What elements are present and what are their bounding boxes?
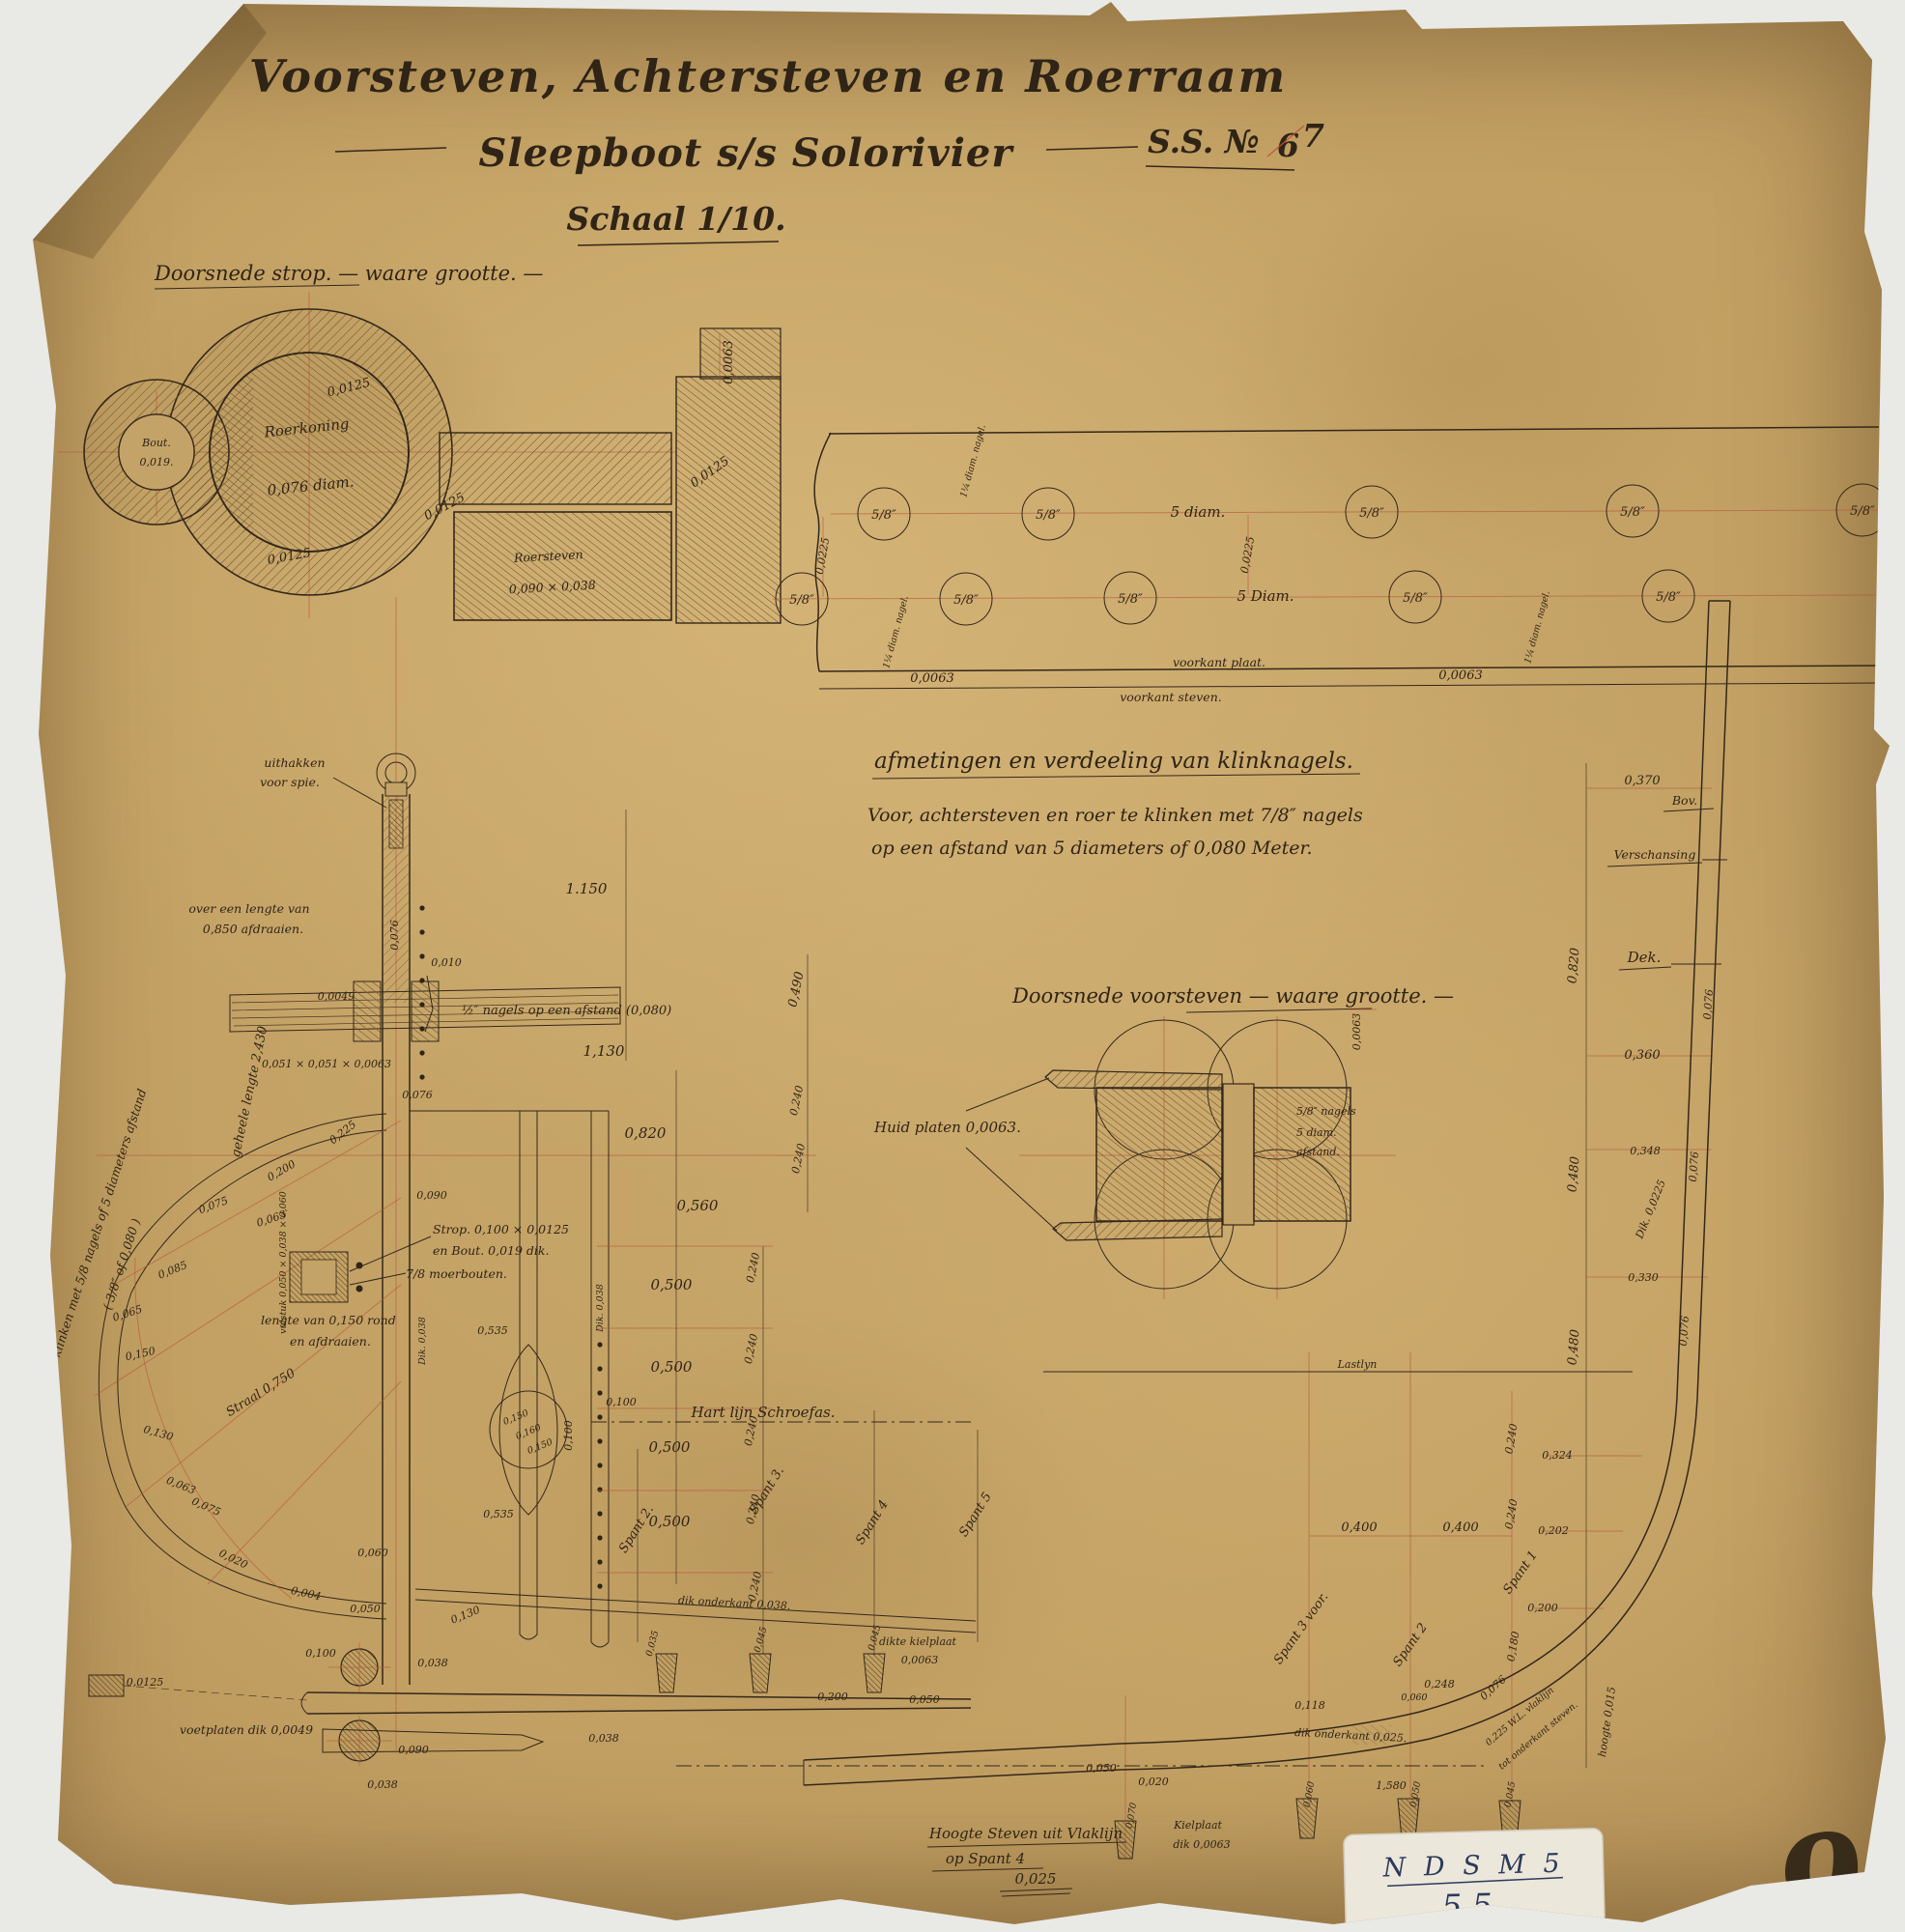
dim-label: 0,076 bbox=[1701, 989, 1716, 1020]
spant-label: Spant 3 voor. bbox=[1271, 1590, 1331, 1667]
dim-label: Dik. 0,038 bbox=[595, 1284, 606, 1333]
dim-label: 0,076 bbox=[1687, 1151, 1701, 1182]
dim-label: 0,480 bbox=[1565, 1156, 1582, 1193]
dim-label: 0,240 bbox=[1502, 1498, 1520, 1530]
dim-label: 0,118 bbox=[1294, 1699, 1325, 1712]
archive-sticker: N D S M 5 5.5 bbox=[1344, 1829, 1606, 1932]
dim-label: 0,240 bbox=[744, 1252, 762, 1285]
rivet-size-label: 5/8″ bbox=[953, 593, 979, 608]
dim-label: 0,240 bbox=[789, 1143, 808, 1176]
moerbouten-note: 7/8 moerbouten. bbox=[406, 1266, 507, 1281]
huid-plate-top bbox=[1045, 1070, 1222, 1090]
kielplaat-note: dikte kielplaat bbox=[879, 1635, 957, 1648]
rivet-size-label: 5/8″ bbox=[1403, 591, 1428, 606]
rivet-spacing-note: 5 diam. bbox=[1171, 503, 1226, 521]
dim-label: 0,0063 bbox=[1438, 668, 1483, 683]
dim-label: 0,240 bbox=[742, 1333, 760, 1366]
dim-label: 0,202 bbox=[1538, 1524, 1569, 1537]
roersteven-bar bbox=[454, 512, 671, 620]
dim-label: 0,075 bbox=[197, 1194, 230, 1216]
note-label: voor spie. bbox=[260, 775, 320, 789]
scale-label: Schaal 1/10. bbox=[566, 200, 785, 238]
series-number: S.S. № bbox=[1148, 123, 1260, 160]
voorkant-plaat-label: voorkant plaat. bbox=[1173, 655, 1265, 669]
strop-note: Strop. 0,100 × 0,0125 bbox=[433, 1222, 569, 1236]
dim-label: 0,0225 bbox=[813, 536, 832, 575]
dim-label: 0,0049 bbox=[318, 990, 355, 1003]
dim-label: 0,330 bbox=[1628, 1271, 1659, 1284]
huid-platen-label: Huid platen 0,0063. bbox=[873, 1119, 1021, 1136]
note-line: op Spant 4 bbox=[946, 1850, 1025, 1867]
dim-label: 0,500 bbox=[649, 1513, 691, 1530]
dim-label: 0,200 bbox=[1527, 1602, 1558, 1614]
dim-label: 0,130 bbox=[142, 1423, 175, 1443]
sticker-code: N D S M 5 bbox=[1381, 1849, 1565, 1884]
dim-label: 0,100 bbox=[606, 1396, 637, 1408]
bout-label: Bout. bbox=[141, 437, 171, 449]
dim-label: 0,050 bbox=[1086, 1762, 1117, 1775]
voetplaten-note: voetplaten dik 0,0049 bbox=[180, 1722, 313, 1737]
dim-label: 0,038 bbox=[417, 1657, 448, 1669]
note-line: Hoogte Steven uit Vlaklijn bbox=[928, 1825, 1123, 1842]
dim-label: dik onderkant 0,038. bbox=[678, 1594, 791, 1612]
verschansing-label: Verschansing bbox=[1614, 847, 1696, 862]
waterline-note: tot onderkant steven. bbox=[1496, 1700, 1579, 1773]
dim-label: 0,324 bbox=[1542, 1449, 1573, 1462]
rivet-spacing-note: 5 Diam. bbox=[1237, 587, 1294, 605]
dim-label: 0,100 bbox=[305, 1647, 336, 1660]
dim-label: 0,240 bbox=[787, 1085, 806, 1118]
vsned-heading: Doorsnede voorsteven — waare grootte. — bbox=[1011, 984, 1454, 1008]
dim-label: 0,076 bbox=[1478, 1673, 1509, 1703]
plate-section: 5/8″ 5/8″ 5/8″ 5/8″ 5/8″ 5 diam. 5/8″ 5/… bbox=[773, 423, 1889, 704]
lastlijn-label: Lastlyn bbox=[1337, 1358, 1378, 1371]
dim-label: 0,076 bbox=[388, 920, 401, 951]
note-label: 0,850 afdraaien. bbox=[203, 922, 303, 936]
huid-plate-bottom bbox=[1053, 1219, 1222, 1240]
note-label: uithakken bbox=[264, 755, 325, 770]
note-label: over een lengte van bbox=[188, 901, 309, 916]
dim-label: 0,0063 bbox=[1351, 1013, 1363, 1051]
note-line2: op een afstand van 5 diameters of 0,080 … bbox=[871, 838, 1313, 859]
rivet-size-label: 5/8″ bbox=[1620, 505, 1645, 520]
drawing-sheet: Voorsteven, Achtersteven en Roerraam Sle… bbox=[0, 0, 1905, 1932]
dim-label: 0,100 bbox=[562, 1420, 575, 1451]
dim-label: 1,130 bbox=[583, 1042, 625, 1060]
hartlijn-label: Hart lijn Schroefas. bbox=[690, 1404, 835, 1421]
sheet-number-stamp: 9 bbox=[1768, 1803, 1877, 1932]
title-block: Voorsteven, Achtersteven en Roerraam Sle… bbox=[249, 50, 1324, 245]
rivet-size-label: 5/8″ bbox=[789, 593, 814, 608]
rivet-note-block: afmetingen en verdeeling van klinknagels… bbox=[867, 749, 1363, 859]
stem-bar-section-left bbox=[1096, 1088, 1222, 1221]
rivet-note-diag: ( 3/8″ of 0,080 ) bbox=[100, 1216, 143, 1311]
rivet-size-label: 5/8″ bbox=[871, 508, 896, 523]
dim-label: 0,090 bbox=[398, 1744, 429, 1756]
note-line: 0,025 bbox=[1015, 1870, 1057, 1888]
spant-label: Spant 4 bbox=[853, 1498, 892, 1548]
bout-note: en Bout. 0,019 dik. bbox=[433, 1243, 549, 1258]
steven-end-top bbox=[700, 328, 781, 379]
dim-label: 0,150 bbox=[501, 1407, 529, 1427]
dim-label: 0,010 bbox=[431, 956, 462, 969]
dim-label: 0,090 bbox=[416, 1189, 447, 1202]
rivet-size-label: 5/8″ bbox=[1656, 590, 1681, 605]
dim-label: 0,063 bbox=[164, 1474, 197, 1497]
dim-label: 0,038 bbox=[588, 1732, 619, 1745]
drawing-subtitle: Sleepboot s/s Solorivier bbox=[479, 130, 1015, 176]
bout-hole bbox=[119, 414, 194, 490]
nail-note: 1¼ diam. nagel. bbox=[1522, 589, 1552, 665]
scan-background: Voorsteven, Achtersteven en Roerraam Sle… bbox=[0, 0, 1905, 1932]
nagels-note: 5/8″ nagels bbox=[1296, 1105, 1356, 1118]
dim-label: 0,130 bbox=[449, 1604, 482, 1627]
dim-label: 0,004 bbox=[290, 1584, 323, 1603]
achtersteven-drawing: 0,150 0,160 0,150 bbox=[36, 597, 995, 1791]
note-heading: afmetingen en verdeeling van klinknagels… bbox=[874, 749, 1353, 774]
dim-label: 0,480 bbox=[1565, 1329, 1582, 1366]
dim-label: 0,060 bbox=[1401, 1692, 1427, 1703]
rivet-size-label: 5/8″ bbox=[1118, 592, 1143, 607]
dim-label: 0,076 bbox=[402, 1089, 433, 1101]
dim-label: 0,020 bbox=[1138, 1776, 1169, 1788]
nail-note: 1¼ diam. nagel. bbox=[881, 594, 911, 669]
spant-label: Spant 5 bbox=[956, 1491, 995, 1540]
dim-label: 0,500 bbox=[651, 1358, 693, 1376]
bout-dim: 0,019. bbox=[140, 456, 174, 469]
dim-label: 0,050 bbox=[350, 1603, 381, 1615]
dim-label: 0,820 bbox=[625, 1124, 667, 1142]
dim-label: 0,0125 bbox=[127, 1676, 164, 1689]
dim-label: 0,150 bbox=[526, 1436, 554, 1456]
dim-label: 0,075 bbox=[189, 1494, 222, 1519]
dim-label: 0,490 bbox=[785, 971, 807, 1009]
blueprint-linework: Voorsteven, Achtersteven en Roerraam Sle… bbox=[0, 0, 1905, 1932]
dim-label: 0,560 bbox=[677, 1197, 719, 1214]
rivet-size-label: 5/8″ bbox=[1359, 506, 1384, 521]
dim-label: 0,535 bbox=[483, 1508, 514, 1520]
dim-label: 0,0225 bbox=[1238, 535, 1257, 574]
note-label: lengte van 0,150 rond bbox=[261, 1313, 396, 1327]
dim-label: 0,820 bbox=[1565, 948, 1582, 984]
key-slot bbox=[389, 800, 403, 848]
nagels-note: 5 diam. bbox=[1296, 1126, 1337, 1139]
strop-arm bbox=[440, 433, 671, 504]
length-note: geheele lengte 2,430 bbox=[229, 1025, 270, 1159]
strop-heading: Doorsnede strop. — waare grootte. — bbox=[154, 262, 543, 285]
roerkoning-section bbox=[210, 353, 409, 552]
dim-label: 0,085 bbox=[156, 1259, 189, 1282]
dim-label: 0,370 bbox=[1624, 774, 1660, 788]
dim-label: 0,051 × 0,051 × 0,0063 bbox=[262, 1058, 391, 1070]
dim-label: 0,065 bbox=[111, 1303, 144, 1324]
nagels-note: afstand. bbox=[1296, 1146, 1340, 1158]
hoogte-steven-note: Hoogte Steven uit Vlaklijn op Spant 4 0,… bbox=[927, 1825, 1126, 1896]
dim-label: 0,248 bbox=[1424, 1678, 1455, 1690]
dim-label: 0,038 bbox=[367, 1778, 398, 1791]
rivet-size-label: 5/8″ bbox=[1850, 504, 1875, 519]
nagels-note: ½″ nagels op een afstand (0,080) bbox=[462, 1004, 671, 1018]
dim-label: 0,060 bbox=[357, 1547, 388, 1559]
dim-label: 0,400 bbox=[1341, 1520, 1377, 1535]
note-line1: Voor, achtersteven en roer te klinken me… bbox=[867, 805, 1363, 826]
steven-end-block bbox=[676, 377, 781, 623]
dim-label: 0,076 bbox=[1677, 1316, 1692, 1347]
dim-label: 0,050 bbox=[909, 1693, 940, 1706]
dim-label: 0,240 bbox=[1502, 1423, 1520, 1455]
dim-label: 0,360 bbox=[1624, 1048, 1660, 1063]
bov-label: Bov. bbox=[1671, 793, 1697, 808]
nail-note: 1¼ diam. nagel. bbox=[958, 423, 988, 498]
rivet-size-label: 5/8″ bbox=[1036, 508, 1061, 523]
drawing-title: Voorsteven, Achtersteven en Roerraam bbox=[249, 50, 1287, 102]
dim-label: 0,160 bbox=[514, 1422, 542, 1441]
radius-label: Straal 0,750 bbox=[224, 1366, 299, 1420]
kielplaat-note: 0,0063 bbox=[901, 1654, 939, 1666]
dim-label: 0,070 bbox=[1124, 1802, 1140, 1830]
dim-label: 0,200 bbox=[817, 1690, 848, 1703]
dim-label: 0,020 bbox=[217, 1547, 250, 1571]
dim-label: 0,180 bbox=[1504, 1631, 1521, 1662]
strop-section: Doorsnede strop. — waare grootte. — Roer… bbox=[58, 262, 781, 623]
sticker-number: 5.5 bbox=[1441, 1887, 1493, 1925]
dim-label: 0,400 bbox=[1442, 1520, 1478, 1535]
dim-label: 0,0063 bbox=[910, 671, 954, 686]
dim-label: 1,580 bbox=[1376, 1779, 1407, 1792]
series-number-new: 7 bbox=[1302, 117, 1324, 155]
dim-label: 0,0063 bbox=[722, 340, 736, 384]
note-label: en afdraaien. bbox=[290, 1334, 371, 1349]
rivet-row-upper: 5/8″ 5/8″ 5/8″ 5/8″ 5/8″ 5 diam. bbox=[858, 484, 1889, 540]
dim-label: hoogte 0,015 bbox=[1596, 1686, 1618, 1757]
voorsteven-section-detail: Doorsnede voorsteven — waare grootte. — … bbox=[873, 984, 1454, 1299]
dim-label: 0,348 bbox=[1630, 1145, 1661, 1157]
voorkant-steven-label: voorkant steven. bbox=[1120, 690, 1221, 704]
dim-label: Dik. 0,038 bbox=[417, 1317, 428, 1366]
dim-label: 0,535 bbox=[477, 1324, 508, 1337]
kielplaat-label: dik 0,0063 bbox=[1173, 1838, 1230, 1851]
dek-label: Dek. bbox=[1627, 949, 1662, 966]
stem-slot bbox=[1223, 1084, 1254, 1225]
dim-label: 0,045 bbox=[753, 1626, 770, 1654]
dim-label: 0,500 bbox=[651, 1276, 693, 1293]
kielplaat-label: Kielplaat bbox=[1173, 1819, 1222, 1832]
dim-label: Dik. 0,0225 bbox=[1633, 1178, 1668, 1241]
dim-label: 1.150 bbox=[566, 880, 608, 897]
spant-label: Spant 1 bbox=[1500, 1548, 1541, 1597]
dim-label: 0,150 bbox=[125, 1345, 157, 1363]
dim-label: 0,500 bbox=[649, 1438, 691, 1456]
